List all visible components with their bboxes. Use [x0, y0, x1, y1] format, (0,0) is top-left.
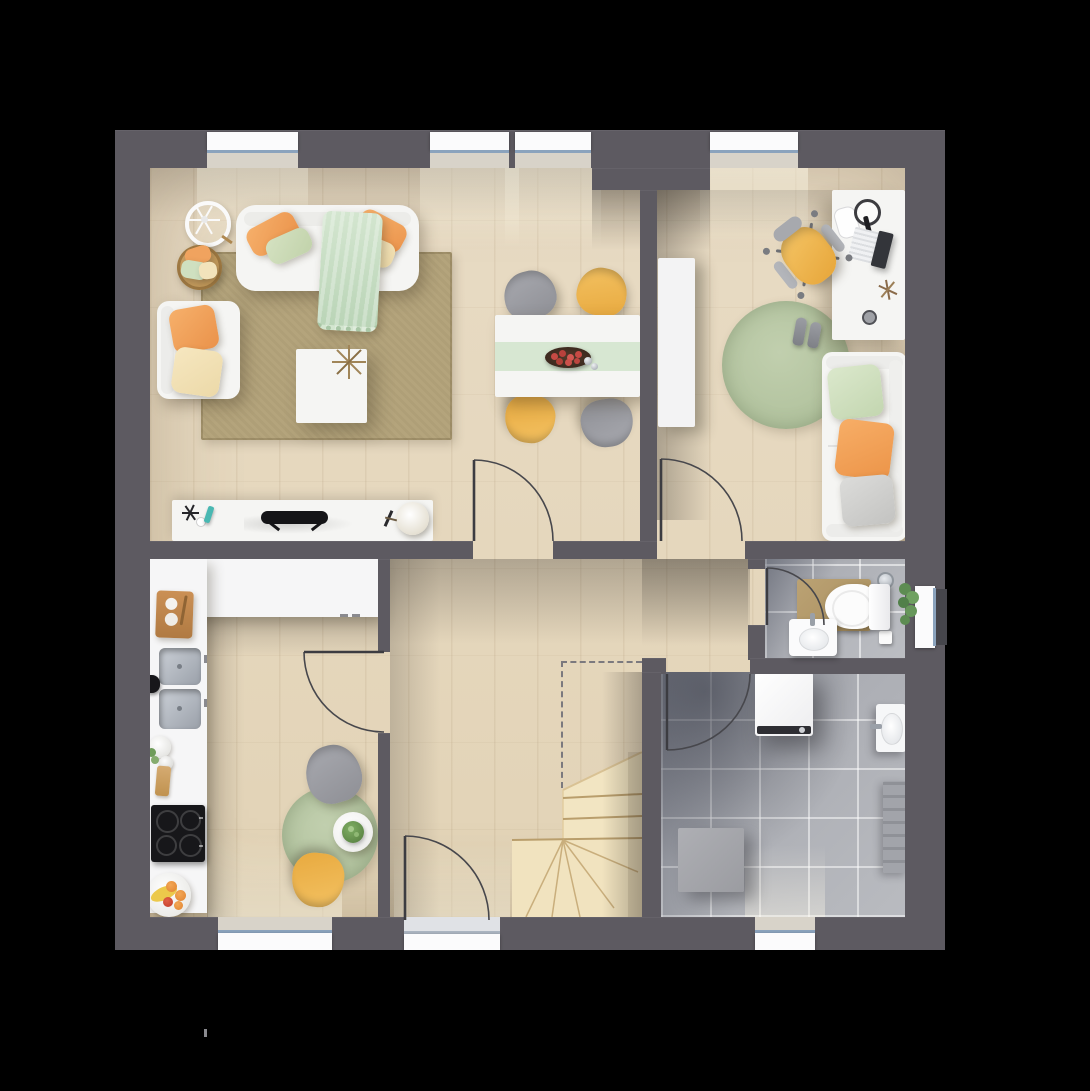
double-sink	[154, 644, 206, 732]
herbs	[151, 756, 159, 764]
cabinet-handle	[204, 1029, 207, 1037]
wall-pier-top	[592, 168, 710, 190]
dining-table	[495, 315, 640, 397]
shoes	[792, 317, 825, 351]
cooktop	[151, 805, 205, 862]
stair-void-outline	[561, 661, 563, 788]
wc-door	[766, 568, 824, 626]
wooden-spoon	[180, 595, 188, 625]
pillow-basket	[177, 245, 222, 290]
basin-bowl	[881, 713, 903, 745]
living-dining-door	[473, 460, 553, 541]
utility-basin	[876, 704, 906, 752]
orange-fruit	[175, 890, 186, 901]
window-dining-left	[430, 130, 509, 168]
table-plant	[342, 821, 364, 843]
office-door	[660, 459, 742, 541]
pepper-shaker	[591, 363, 598, 370]
wall-kitchen-upper	[378, 559, 390, 652]
burner	[180, 810, 201, 831]
desk-knob	[862, 310, 877, 325]
wc-plant	[897, 581, 921, 629]
daybed-pillow-gray	[839, 474, 896, 527]
wall-utility-top-right	[750, 658, 905, 674]
wall-left	[115, 130, 150, 950]
front-entrance-door	[404, 836, 489, 920]
wall-dining-office	[640, 190, 657, 541]
utility-door	[666, 674, 750, 752]
bread-board	[155, 765, 172, 796]
armchair-pillow-cream	[170, 346, 224, 398]
wall-mid-left	[150, 541, 473, 559]
apple	[163, 897, 173, 907]
wall-wc-left-lower	[748, 625, 765, 660]
control-mark	[199, 817, 203, 819]
window-living-top	[207, 130, 298, 168]
chair-wheel	[762, 246, 772, 256]
bistro-table	[333, 812, 373, 852]
waste-bin	[879, 631, 892, 644]
burner	[156, 810, 179, 833]
basin-tap	[870, 724, 882, 729]
pompom-decor	[396, 502, 429, 535]
tv-console	[172, 500, 433, 541]
tall-cabinet	[658, 258, 695, 427]
stair-void-outline	[561, 661, 642, 663]
chair-wheel	[844, 253, 854, 263]
toilet-seat	[832, 590, 872, 627]
window-dining-right	[515, 130, 591, 168]
daybed-pillow-orange	[834, 418, 896, 481]
storage-box	[678, 828, 744, 892]
kitchen-door	[304, 651, 384, 732]
sink-drain	[177, 706, 182, 711]
toilet-tank	[869, 584, 890, 630]
window-utility-bottom	[755, 917, 815, 950]
fruit-plate	[147, 873, 191, 917]
armchair-pillow-orange	[168, 303, 221, 354]
washing-machine	[755, 672, 813, 736]
window-kitchen-bottom	[218, 917, 332, 950]
wall-kitchen-lower	[378, 733, 390, 917]
chair-wheel	[810, 209, 820, 219]
sink-drain	[177, 664, 182, 669]
control-mark	[199, 845, 203, 847]
cutting-board	[155, 590, 194, 638]
cabinet-handle	[352, 614, 360, 617]
throw-blanket	[317, 211, 383, 333]
chair-wheel	[796, 291, 806, 301]
wall-mid-right	[745, 541, 905, 559]
twig-decor	[331, 344, 367, 380]
window-office-top	[710, 130, 798, 168]
wall-right	[905, 130, 945, 950]
washer-dial	[799, 727, 805, 733]
tv-remote	[204, 505, 215, 523]
daybed-pillow-mint	[826, 363, 884, 420]
front-door-threshold	[404, 917, 500, 950]
basket-pillow-cream	[198, 261, 218, 280]
desk-sprig	[878, 280, 898, 300]
wall-wc-left-upper	[748, 559, 765, 569]
wall-utility-left	[642, 672, 661, 917]
wall-mid-center	[553, 541, 657, 559]
wheel-hub	[201, 216, 208, 223]
orange-fruit	[166, 881, 177, 892]
winder-staircase	[512, 750, 642, 917]
burner	[156, 835, 177, 856]
cabinet-handle	[340, 614, 348, 617]
floor-plan	[0, 0, 1090, 1091]
wheel-decor	[185, 201, 231, 247]
orange-fruit	[174, 901, 183, 910]
prep-items	[147, 734, 192, 796]
basin-bowl	[799, 628, 829, 651]
